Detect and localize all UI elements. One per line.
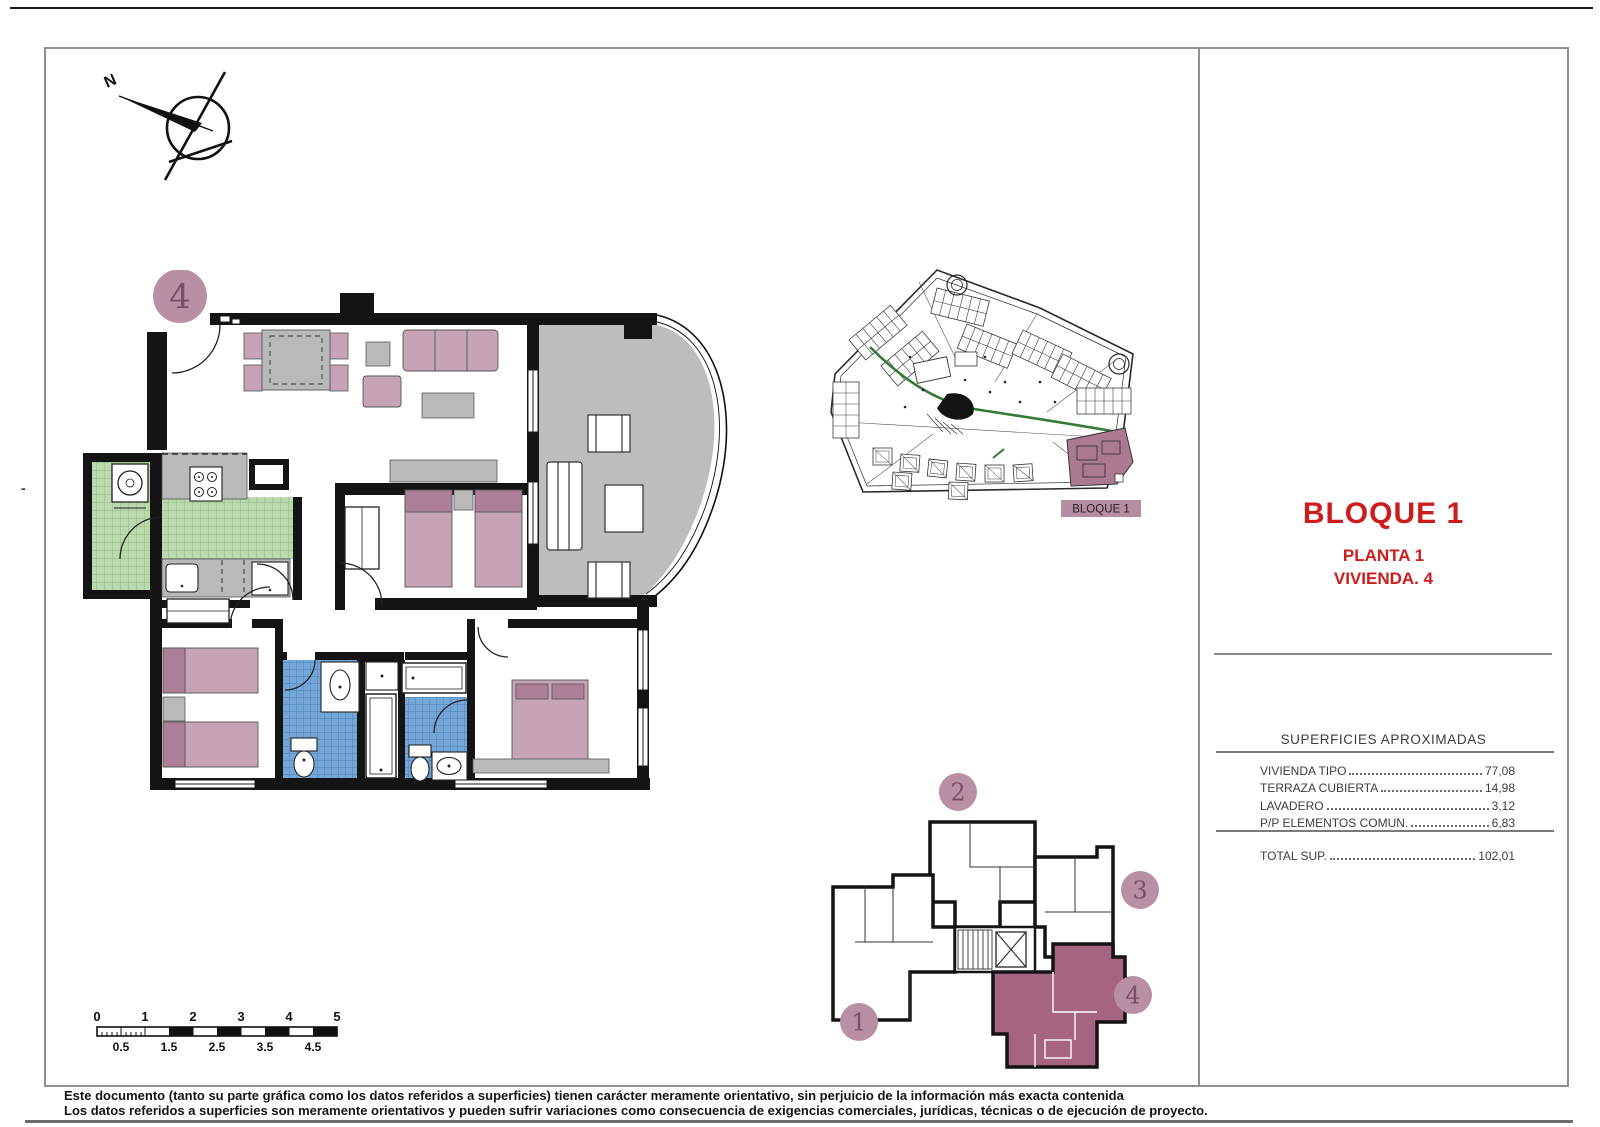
table-rule-top bbox=[1216, 751, 1554, 753]
svg-text:4: 4 bbox=[285, 1009, 293, 1024]
row-label: VIVIENDA TIPO bbox=[1260, 764, 1346, 778]
unit-number-badge: 4 bbox=[153, 270, 207, 323]
svg-text:3: 3 bbox=[237, 1009, 244, 1024]
main-floor-plan: 4 bbox=[72, 270, 752, 800]
row-label: P/P ELEMENTOS COMUN. bbox=[1260, 816, 1408, 830]
table-row: LAVADERO 3,12 bbox=[1260, 795, 1515, 813]
areas-table: VIVIENDA TIPO 77,08 TERRAZA CUBIERTA 14,… bbox=[1260, 760, 1515, 830]
key-circle-4: 4 bbox=[1125, 981, 1140, 1009]
kitchen-sink bbox=[166, 564, 198, 592]
toilet2 bbox=[411, 757, 429, 781]
site-plan: BLOQUE 1 bbox=[815, 262, 1145, 524]
bedroom-center bbox=[345, 460, 522, 587]
svg-text:2: 2 bbox=[189, 1009, 196, 1024]
row-label: LAVADERO bbox=[1260, 799, 1324, 813]
floor-subtitle: PLANTA 1 bbox=[1200, 546, 1567, 566]
table-row: VIVIENDA TIPO 77,08 bbox=[1260, 760, 1515, 778]
table-row: P/P ELEMENTOS COMUN. 6,83 bbox=[1260, 813, 1515, 831]
svg-text:0.5: 0.5 bbox=[113, 1040, 130, 1054]
unit-badge-number: 4 bbox=[169, 277, 191, 317]
bathtub bbox=[366, 694, 396, 778]
bottom-rule bbox=[25, 1120, 1573, 1123]
bedroom-master bbox=[473, 680, 609, 773]
plan-sheet-page: N bbox=[0, 0, 1600, 1127]
key-circle-1: 1 bbox=[851, 1008, 866, 1036]
dot-leader bbox=[1381, 790, 1482, 792]
block-title: BLOQUE 1 bbox=[1200, 497, 1567, 531]
kitchen-floor bbox=[162, 497, 293, 559]
total-row: TOTAL SUP. 102,01 bbox=[1260, 845, 1515, 863]
svg-text:4.5: 4.5 bbox=[305, 1040, 322, 1054]
unit-subtitle: VIVIENDA. 4 bbox=[1200, 569, 1567, 589]
table-row: TERRAZA CUBIERTA 14,98 bbox=[1260, 778, 1515, 796]
row-value: 3,12 bbox=[1492, 799, 1515, 813]
north-label: N bbox=[102, 71, 119, 91]
key-circle-2: 2 bbox=[950, 778, 965, 806]
margin-tick: - bbox=[21, 480, 26, 496]
row-label: TERRAZA CUBIERTA bbox=[1260, 781, 1378, 795]
sofa bbox=[403, 330, 498, 371]
row-value: 14,98 bbox=[1485, 781, 1515, 795]
disclaimer-line-2: Los datos referidos a superficies son me… bbox=[64, 1103, 1208, 1118]
total-value: 102,01 bbox=[1478, 849, 1515, 863]
dot-leader bbox=[1411, 825, 1488, 827]
living-dining bbox=[244, 330, 498, 418]
panel-divider bbox=[1214, 653, 1552, 655]
disclaimer-line-1: Este documento (tanto su parte gráfica c… bbox=[64, 1088, 1124, 1103]
areas-table-header: SUPERFICIES APROXIMADAS bbox=[1200, 732, 1567, 747]
key-plan: 1 2 3 4 bbox=[795, 772, 1175, 1070]
title-panel: BLOQUE 1 PLANTA 1 VIVIENDA. 4 SUPERFICIE… bbox=[1200, 47, 1569, 1087]
row-value: 77,08 bbox=[1485, 764, 1515, 778]
row-value: 6,83 bbox=[1492, 816, 1515, 830]
key-unit-3 bbox=[1035, 847, 1113, 957]
total-label: TOTAL SUP. bbox=[1260, 849, 1327, 863]
toilet bbox=[294, 751, 314, 777]
terrace bbox=[539, 315, 727, 600]
block-label: BLOQUE 1 bbox=[1072, 504, 1130, 516]
svg-text:5: 5 bbox=[333, 1009, 340, 1024]
top-rule bbox=[10, 7, 1593, 9]
svg-text:2.5: 2.5 bbox=[209, 1040, 226, 1054]
north-arrow: N bbox=[95, 62, 255, 187]
laundry bbox=[112, 464, 148, 508]
scale-bar: 0 1 2 3 4 5 0.5 1.5 2.5 3.5 bbox=[85, 1003, 355, 1061]
bathtub-column bbox=[366, 662, 398, 778]
dot-leader bbox=[1327, 808, 1489, 810]
coffee-table bbox=[422, 393, 474, 418]
wardrobe bbox=[390, 460, 497, 482]
armchair bbox=[363, 376, 401, 407]
table-rule-bottom bbox=[1216, 830, 1554, 832]
stove bbox=[190, 467, 222, 501]
key-circle-3: 3 bbox=[1132, 876, 1147, 904]
svg-text:1: 1 bbox=[141, 1009, 148, 1024]
scale-top-labels: 0 1 2 3 4 5 bbox=[93, 1009, 340, 1024]
svg-text:1.5: 1.5 bbox=[161, 1040, 178, 1054]
scale-bottom-labels: 0.5 1.5 2.5 3.5 4.5 bbox=[113, 1040, 322, 1054]
dining-table bbox=[262, 330, 330, 390]
svg-text:3.5: 3.5 bbox=[257, 1040, 274, 1054]
key-unit-2 bbox=[930, 822, 1035, 927]
svg-text:0: 0 bbox=[93, 1009, 100, 1024]
dot-leader bbox=[1349, 773, 1481, 775]
dot-leader bbox=[1330, 858, 1475, 860]
